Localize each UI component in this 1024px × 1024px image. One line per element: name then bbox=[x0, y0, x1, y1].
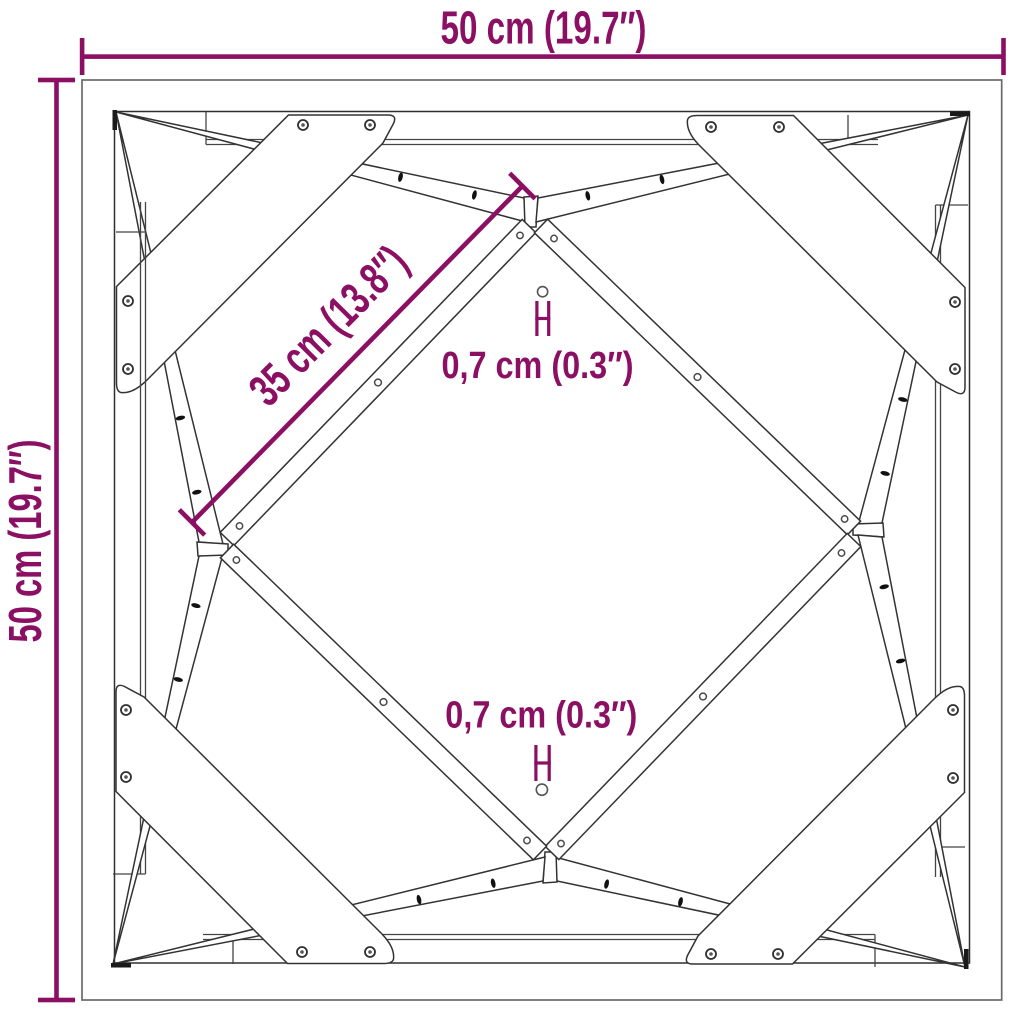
svg-text:0,7 cm (0.3″): 0,7 cm (0.3″) bbox=[442, 345, 634, 387]
svg-text:0,7 cm (0.3″): 0,7 cm (0.3″) bbox=[445, 695, 637, 737]
svg-text:50 cm (19.7″): 50 cm (19.7″) bbox=[0, 440, 51, 643]
svg-text:50 cm (19.7″): 50 cm (19.7″) bbox=[441, 2, 647, 54]
